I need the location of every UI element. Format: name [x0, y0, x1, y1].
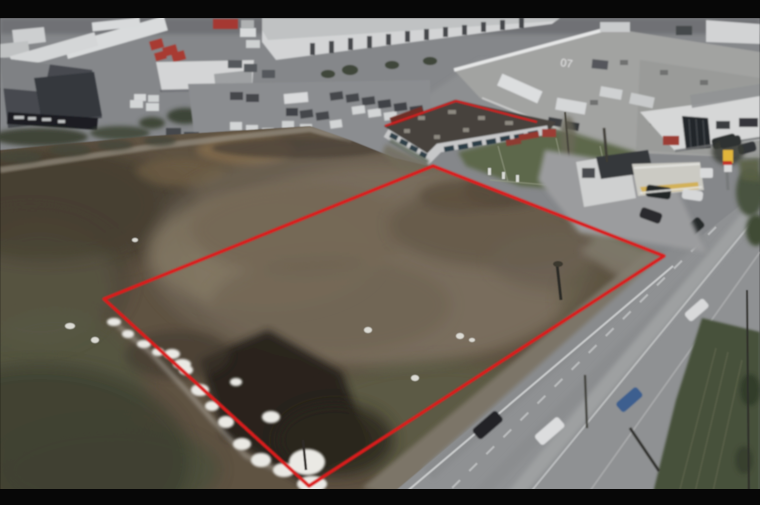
svg-text:07: 07 — [560, 57, 574, 71]
